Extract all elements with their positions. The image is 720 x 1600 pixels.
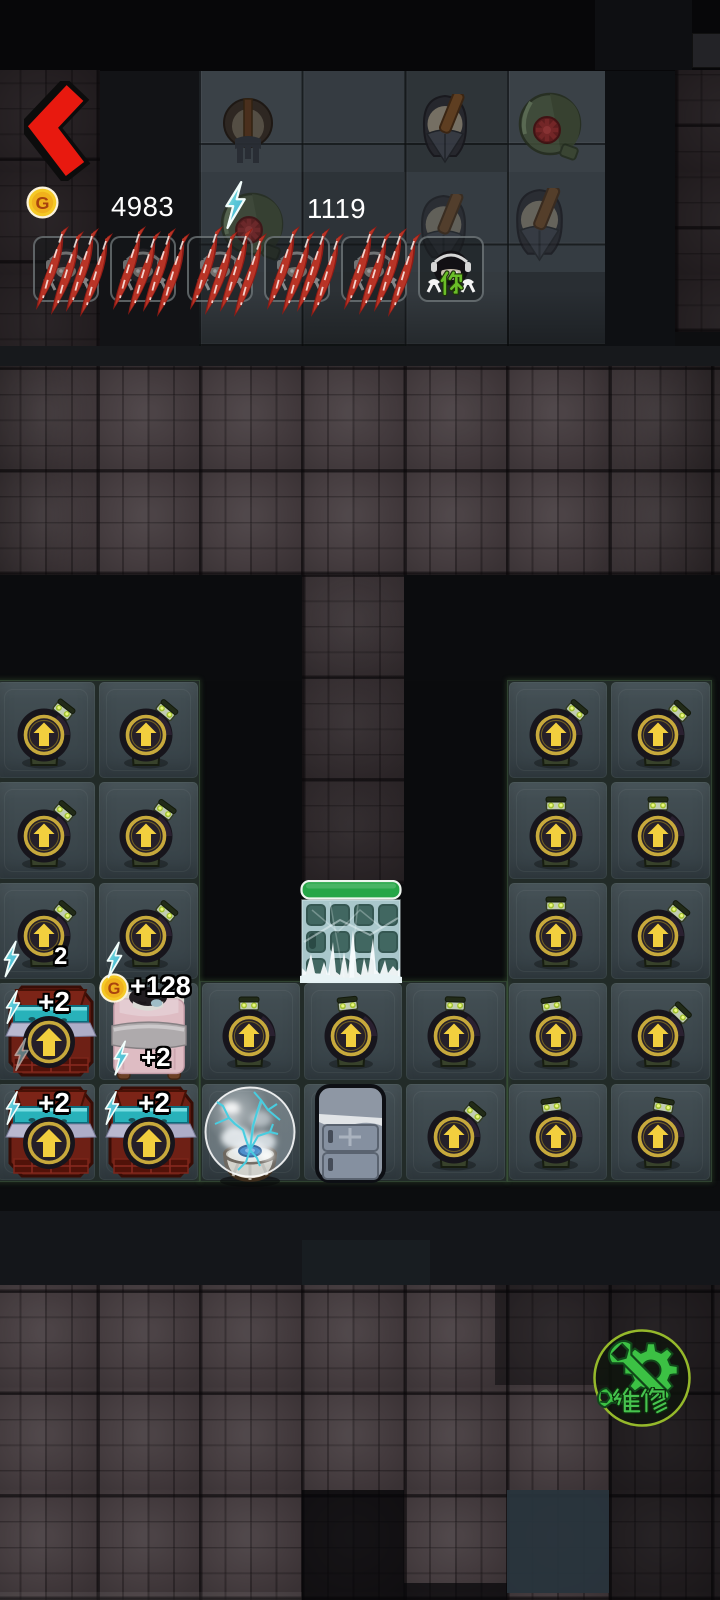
svg-text:G: G	[36, 193, 50, 213]
svg-text:G: G	[108, 980, 121, 998]
